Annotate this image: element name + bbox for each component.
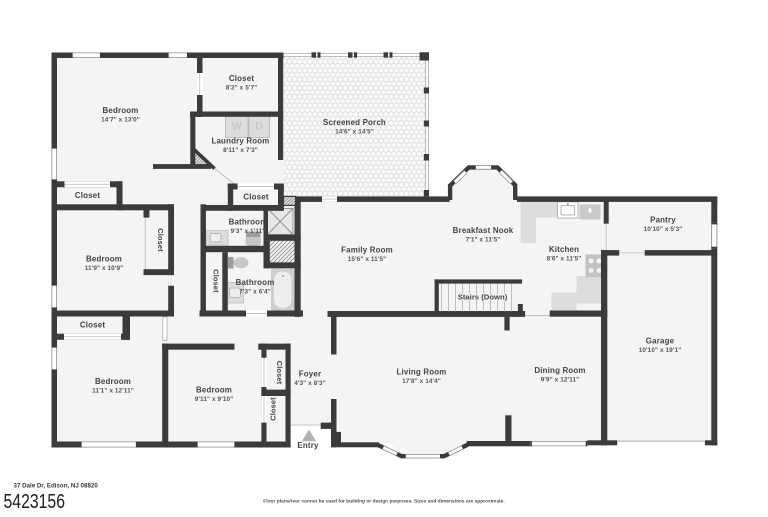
svg-text:Closet: Closet — [156, 228, 165, 252]
svg-text:Laundry Room: Laundry Room — [211, 137, 269, 146]
svg-text:37 Dale Dr, Edison, NJ 08820: 37 Dale Dr, Edison, NJ 08820 — [14, 483, 99, 490]
svg-text:Closet: Closet — [243, 193, 268, 202]
svg-text:Closet: Closet — [269, 397, 278, 421]
svg-text:8'2" x 5'7": 8'2" x 5'7" — [226, 85, 258, 92]
svg-text:D: D — [255, 121, 263, 133]
svg-text:8'11" x 7'3": 8'11" x 7'3" — [223, 147, 258, 154]
svg-text:Bedroom: Bedroom — [196, 386, 232, 395]
svg-text:4'3" x 8'3": 4'3" x 8'3" — [294, 380, 326, 387]
svg-text:Living Room: Living Room — [397, 368, 447, 377]
svg-text:11'9" x 10'9": 11'9" x 10'9" — [85, 265, 123, 272]
svg-text:11'1" x 12'11": 11'1" x 12'11" — [92, 388, 134, 395]
svg-text:15'6" x 11'5": 15'6" x 11'5" — [348, 256, 386, 263]
svg-text:Closet: Closet — [275, 361, 284, 385]
svg-text:Screened Porch: Screened Porch — [323, 118, 386, 127]
svg-text:Pantry: Pantry — [650, 216, 676, 225]
svg-text:10'10" x 19'1": 10'10" x 19'1" — [639, 347, 681, 354]
svg-text:W: W — [232, 121, 242, 133]
svg-text:Bathroom: Bathroom — [229, 218, 268, 227]
svg-text:Dining Room: Dining Room — [534, 366, 585, 375]
svg-text:Entry: Entry — [297, 441, 319, 450]
svg-text:Stairs (Down): Stairs (Down) — [458, 293, 508, 302]
svg-text:9'11" x 9'10": 9'11" x 9'10" — [195, 396, 233, 403]
svg-text:Kitchen: Kitchen — [549, 245, 579, 254]
svg-text:Closet: Closet — [75, 191, 100, 200]
svg-text:Closet: Closet — [229, 74, 254, 83]
svg-text:Bedroom: Bedroom — [102, 106, 138, 115]
svg-text:14'7" x 13'0": 14'7" x 13'0" — [101, 117, 140, 124]
svg-text:Closet: Closet — [212, 269, 221, 293]
svg-text:10'10" x 5'3": 10'10" x 5'3" — [644, 226, 683, 233]
svg-text:Bedroom: Bedroom — [95, 377, 131, 386]
svg-text:Foyer: Foyer — [299, 370, 322, 379]
svg-text:Bedroom: Bedroom — [86, 255, 122, 264]
svg-text:5423156: 5423156 — [4, 491, 66, 512]
svg-text:Breakfast Nook: Breakfast Nook — [453, 226, 514, 235]
svg-text:7'3" x 6'4": 7'3" x 6'4" — [239, 289, 271, 296]
svg-text:Bathroom: Bathroom — [236, 278, 275, 287]
svg-text:17'8" x 14'4": 17'8" x 14'4" — [402, 378, 441, 385]
svg-text:Floor plans/tour cannot be use: Floor plans/tour cannot be used for buil… — [263, 499, 505, 505]
svg-text:Closet: Closet — [80, 321, 105, 330]
svg-text:9'9" x 12'11": 9'9" x 12'11" — [541, 377, 579, 384]
svg-text:Garage: Garage — [646, 337, 675, 346]
svg-text:7'1" x 11'5": 7'1" x 11'5" — [466, 237, 501, 244]
svg-text:8'6" x 11'5": 8'6" x 11'5" — [547, 256, 582, 263]
svg-text:9'3" x 1'11": 9'3" x 1'11" — [231, 228, 266, 235]
svg-text:Family Room: Family Room — [341, 246, 393, 255]
svg-text:14'6" x 14'5": 14'6" x 14'5" — [335, 129, 374, 136]
